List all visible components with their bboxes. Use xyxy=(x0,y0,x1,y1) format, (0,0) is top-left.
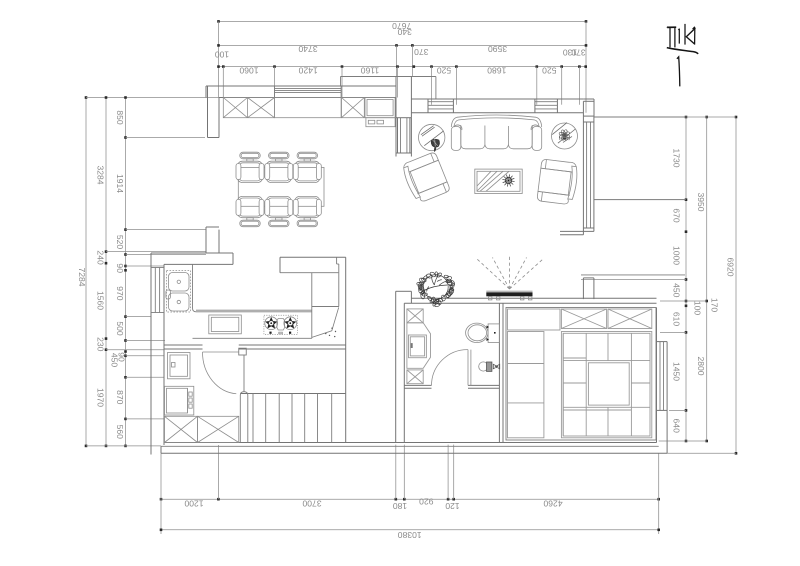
svg-text:870: 870 xyxy=(115,390,125,405)
svg-text:850: 850 xyxy=(115,110,125,125)
svg-text:1420: 1420 xyxy=(298,65,317,75)
svg-text:3950: 3950 xyxy=(696,192,706,211)
svg-text:180: 180 xyxy=(393,501,408,511)
svg-text:90: 90 xyxy=(115,263,125,273)
svg-text:520: 520 xyxy=(542,65,557,75)
svg-text:1450: 1450 xyxy=(672,362,682,381)
svg-text:3740: 3740 xyxy=(298,44,317,54)
svg-text:520: 520 xyxy=(115,235,125,250)
svg-text:2800: 2800 xyxy=(696,356,706,375)
svg-text:3284: 3284 xyxy=(96,165,106,184)
svg-text:1060: 1060 xyxy=(239,65,258,75)
svg-text:120: 120 xyxy=(445,501,460,511)
svg-text:3700: 3700 xyxy=(302,498,321,508)
svg-text:170: 170 xyxy=(710,298,720,313)
svg-text:7284: 7284 xyxy=(77,267,87,286)
svg-text:500: 500 xyxy=(115,321,125,336)
svg-text:1914: 1914 xyxy=(115,174,125,193)
svg-text:970: 970 xyxy=(115,286,125,301)
svg-text:640: 640 xyxy=(672,419,682,434)
svg-text:1730: 1730 xyxy=(672,148,682,167)
svg-text:1680: 1680 xyxy=(487,65,506,75)
svg-text:4260: 4260 xyxy=(543,498,562,508)
svg-text:920: 920 xyxy=(419,497,434,507)
svg-text:340: 340 xyxy=(397,27,412,37)
svg-text:10380: 10380 xyxy=(398,530,422,540)
svg-text:370: 370 xyxy=(414,47,429,57)
svg-text:450: 450 xyxy=(672,283,682,298)
svg-text:610: 610 xyxy=(672,312,682,327)
svg-text:6920: 6920 xyxy=(726,257,736,276)
svg-text:90: 90 xyxy=(117,352,127,362)
svg-text:1160: 1160 xyxy=(361,65,380,75)
svg-text:240: 240 xyxy=(96,250,106,265)
svg-text:100: 100 xyxy=(693,301,703,316)
svg-text:1000: 1000 xyxy=(672,246,682,265)
svg-text:1200: 1200 xyxy=(184,498,203,508)
svg-text:560: 560 xyxy=(115,425,125,440)
svg-text:520: 520 xyxy=(437,65,452,75)
svg-text:370: 370 xyxy=(571,48,586,58)
svg-text:100: 100 xyxy=(215,49,230,59)
svg-text:1970: 1970 xyxy=(96,388,106,407)
svg-text:670: 670 xyxy=(672,208,682,223)
svg-text:1560: 1560 xyxy=(96,291,106,310)
svg-text:230: 230 xyxy=(96,337,106,352)
svg-text:3590: 3590 xyxy=(488,44,507,54)
